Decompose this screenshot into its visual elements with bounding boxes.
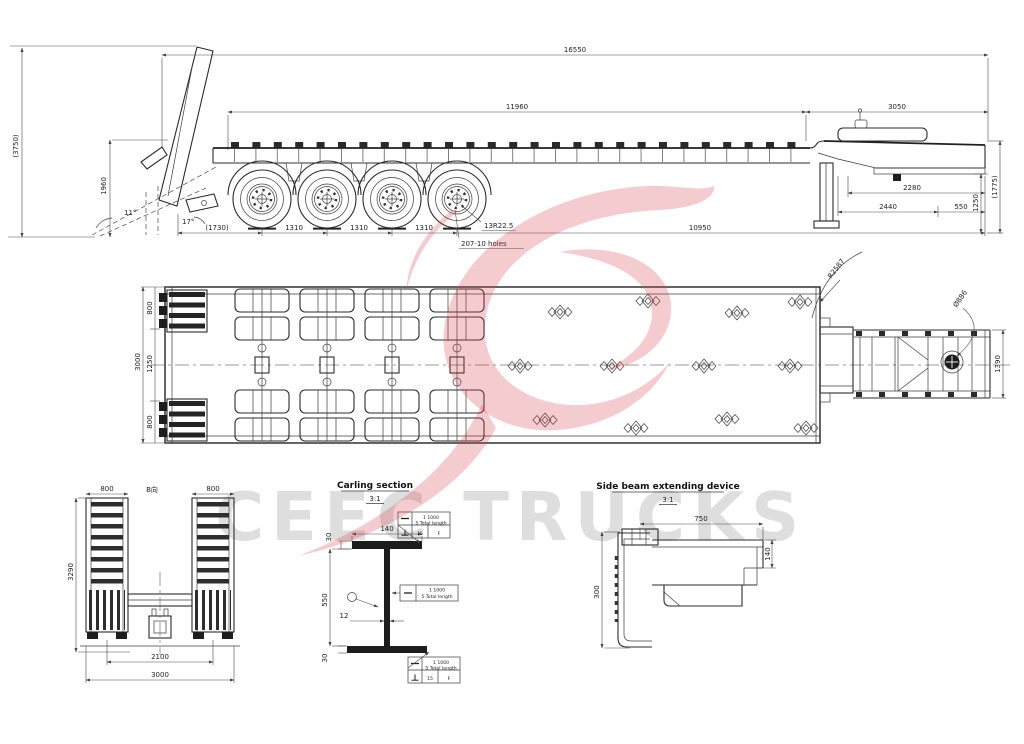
dim-overall-height: 3290 [67,563,75,581]
carling-title: Carling section [337,481,413,491]
carling-section-view: Carling section 3:1 140 30 550 12 [321,481,460,683]
carling-scale: 3:1 [369,495,380,503]
dim-deck-length: 11960 [506,103,528,111]
rear-ramp-left [86,498,128,639]
dim-ramp-width-left: 800 [100,485,113,493]
weld-callout-mid: 1 1000 5 Total length [400,585,458,601]
dim-kingpin-height: 1250 [972,194,980,212]
dim-bottom-flange-thickness: 30 [321,654,329,663]
dim-beam-height: 140 [764,547,772,560]
weld-mid-row1: 1 1000 [429,588,445,594]
dim-overall-length: 16550 [564,46,586,54]
dim-ramp-center-spacing: 2100 [151,653,169,661]
rear-ramp-right [192,498,234,639]
plan-view: 3000 800 1250 800 [134,252,1010,443]
plan-ramp-bottom [159,399,207,441]
dim-gooseneck-width: 1390 [994,355,1002,373]
side-beam-title: Side beam extending device [596,482,740,492]
side-beam-scale: 3:1 [662,496,673,504]
dim-extend-length: 750 [694,515,707,523]
technical-drawing: 1 1000 5 Total length 15 F 16550 11960 3… [0,0,1024,744]
dim-axle-spacing-2: 1310 [350,224,368,232]
dim-kingpin-circle: Ø886 [952,288,970,308]
plan-ramp-top [159,290,207,332]
axle-3 [358,161,426,229]
dim-550: 550 [954,203,967,211]
rear-view-label: B向 [146,485,158,494]
dim-web-thickness: 12 [340,612,349,620]
dim-front-span: 10950 [689,224,711,232]
label-rim-holes: 207-10 holes [461,240,507,248]
axle-4 [423,161,491,229]
rear-view: B向 800 800 3290 2100 3 [67,485,240,683]
label-tail-angle: 17° [182,218,194,226]
dim-ramp-width-right: 800 [206,485,219,493]
side-beam-device-view: Side beam extending device 3:1 750 140 3… [593,482,776,648]
dim-swing-radius: R2587 [826,257,846,280]
dim-gooseneck-height: (1775) [991,175,999,199]
axle-1 [228,161,296,229]
dim-ramp-width-top: 800 [146,301,154,314]
dim-deck-width: 3000 [134,353,142,371]
dim-rear-overhang: (1730) [205,224,229,232]
side-view: 16550 11960 3050 (3750) 1960 [8,46,1003,249]
label-tire-spec: 13R22.5 [484,222,513,230]
dim-gooseneck-length: 3050 [888,103,906,111]
dim-2440: 2440 [879,203,897,211]
dim-rear-height: 1960 [100,177,108,195]
dim-overall-width: 3000 [151,671,169,679]
weld-mid-row2: 5 Total length [421,594,452,600]
dim-ramp-width-bottom: 800 [146,415,154,428]
dim-ramp-raised-height: (3750) [12,134,20,158]
blueprint-canvas: CEEC TRUCKS [0,0,1024,744]
dim-2280: 2280 [903,184,921,192]
dim-flange-thickness: 30 [325,533,333,542]
dim-axle-spacing-1: 1310 [285,224,303,232]
dim-web-height: 550 [321,593,329,606]
axle-2 [293,161,361,229]
gooseneck-plan [820,318,990,402]
dim-inner-width: 1250 [146,355,154,373]
label-ramp-angle: 11° [124,209,136,217]
dim-flange-width: 140 [380,525,393,533]
dim-device-height: 300 [593,585,601,598]
dim-axle-spacing-3: 1310 [415,224,433,232]
